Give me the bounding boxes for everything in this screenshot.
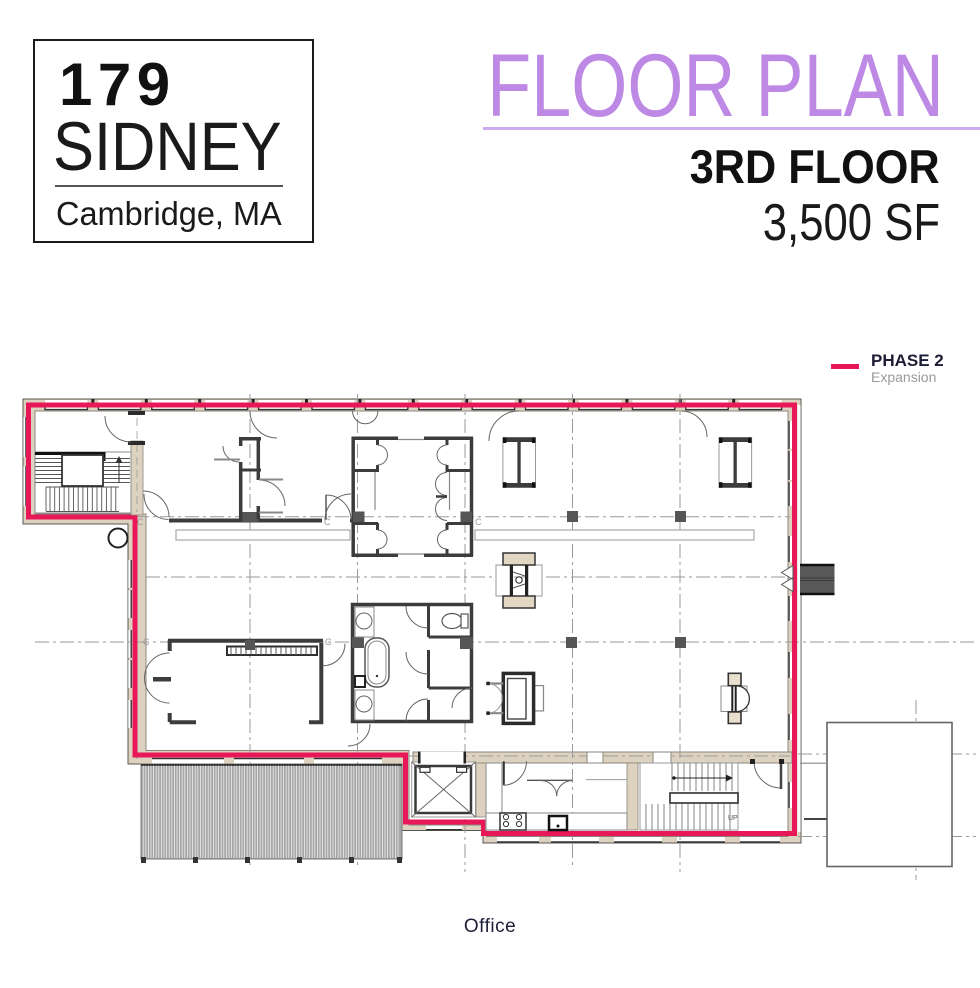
svg-text:Office: Office	[464, 916, 516, 937]
svg-text:C: C	[143, 637, 150, 647]
svg-text:C: C	[475, 517, 482, 527]
svg-text:UP: UP	[728, 815, 738, 822]
svg-text:C: C	[324, 517, 331, 527]
svg-text:C: C	[137, 517, 144, 527]
svg-text:C: C	[325, 637, 332, 647]
